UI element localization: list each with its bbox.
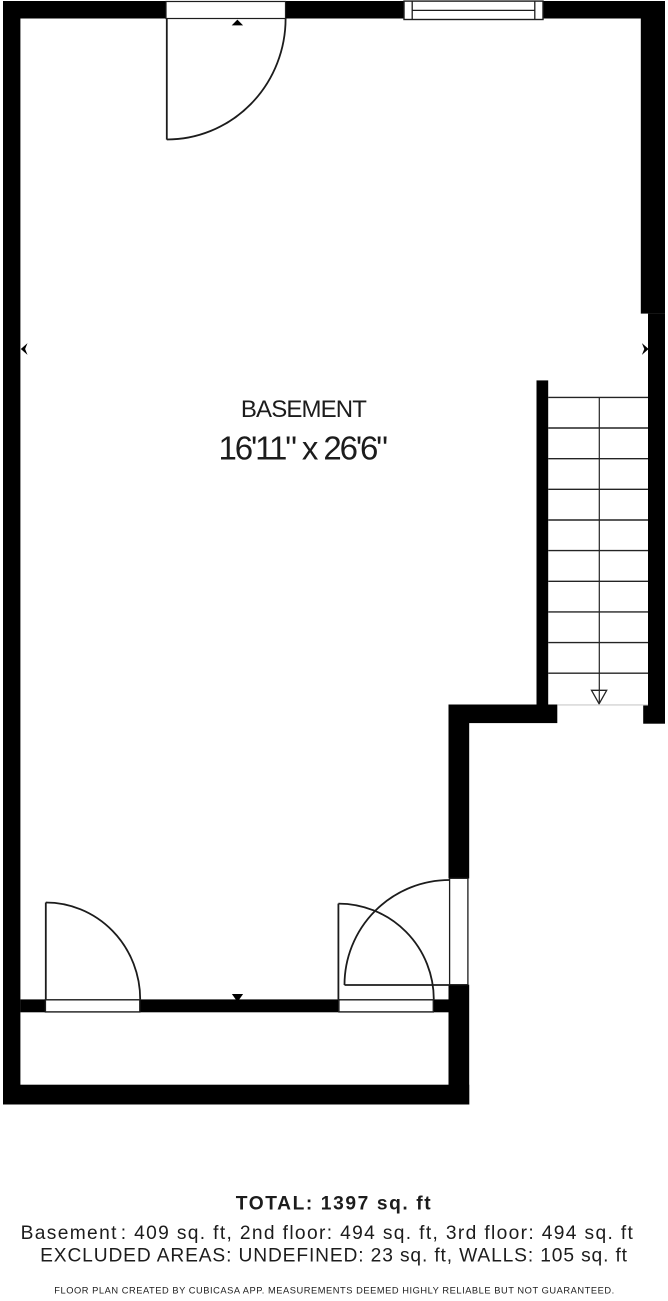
- svg-text:TOTAL: 1397 sq. ft: TOTAL: 1397 sq. ft: [236, 1194, 433, 1215]
- svg-text:FLOOR PLAN CREATED BY CUBICASA: FLOOR PLAN CREATED BY CUBICASA APP. MEAS…: [54, 1286, 614, 1296]
- svg-text:Basement : 409 sq. ft, 2nd flo: Basement : 409 sq. ft, 2nd floor: 494 sq…: [21, 1223, 635, 1244]
- svg-text:EXCLUDED AREAS: UNDEFINED: 23: EXCLUDED AREAS: UNDEFINED: 23 sq. ft, WA…: [40, 1245, 628, 1266]
- svg-text:16'11" x 26'6": 16'11" x 26'6": [218, 429, 387, 466]
- svg-text:BASEMENT: BASEMENT: [241, 396, 367, 423]
